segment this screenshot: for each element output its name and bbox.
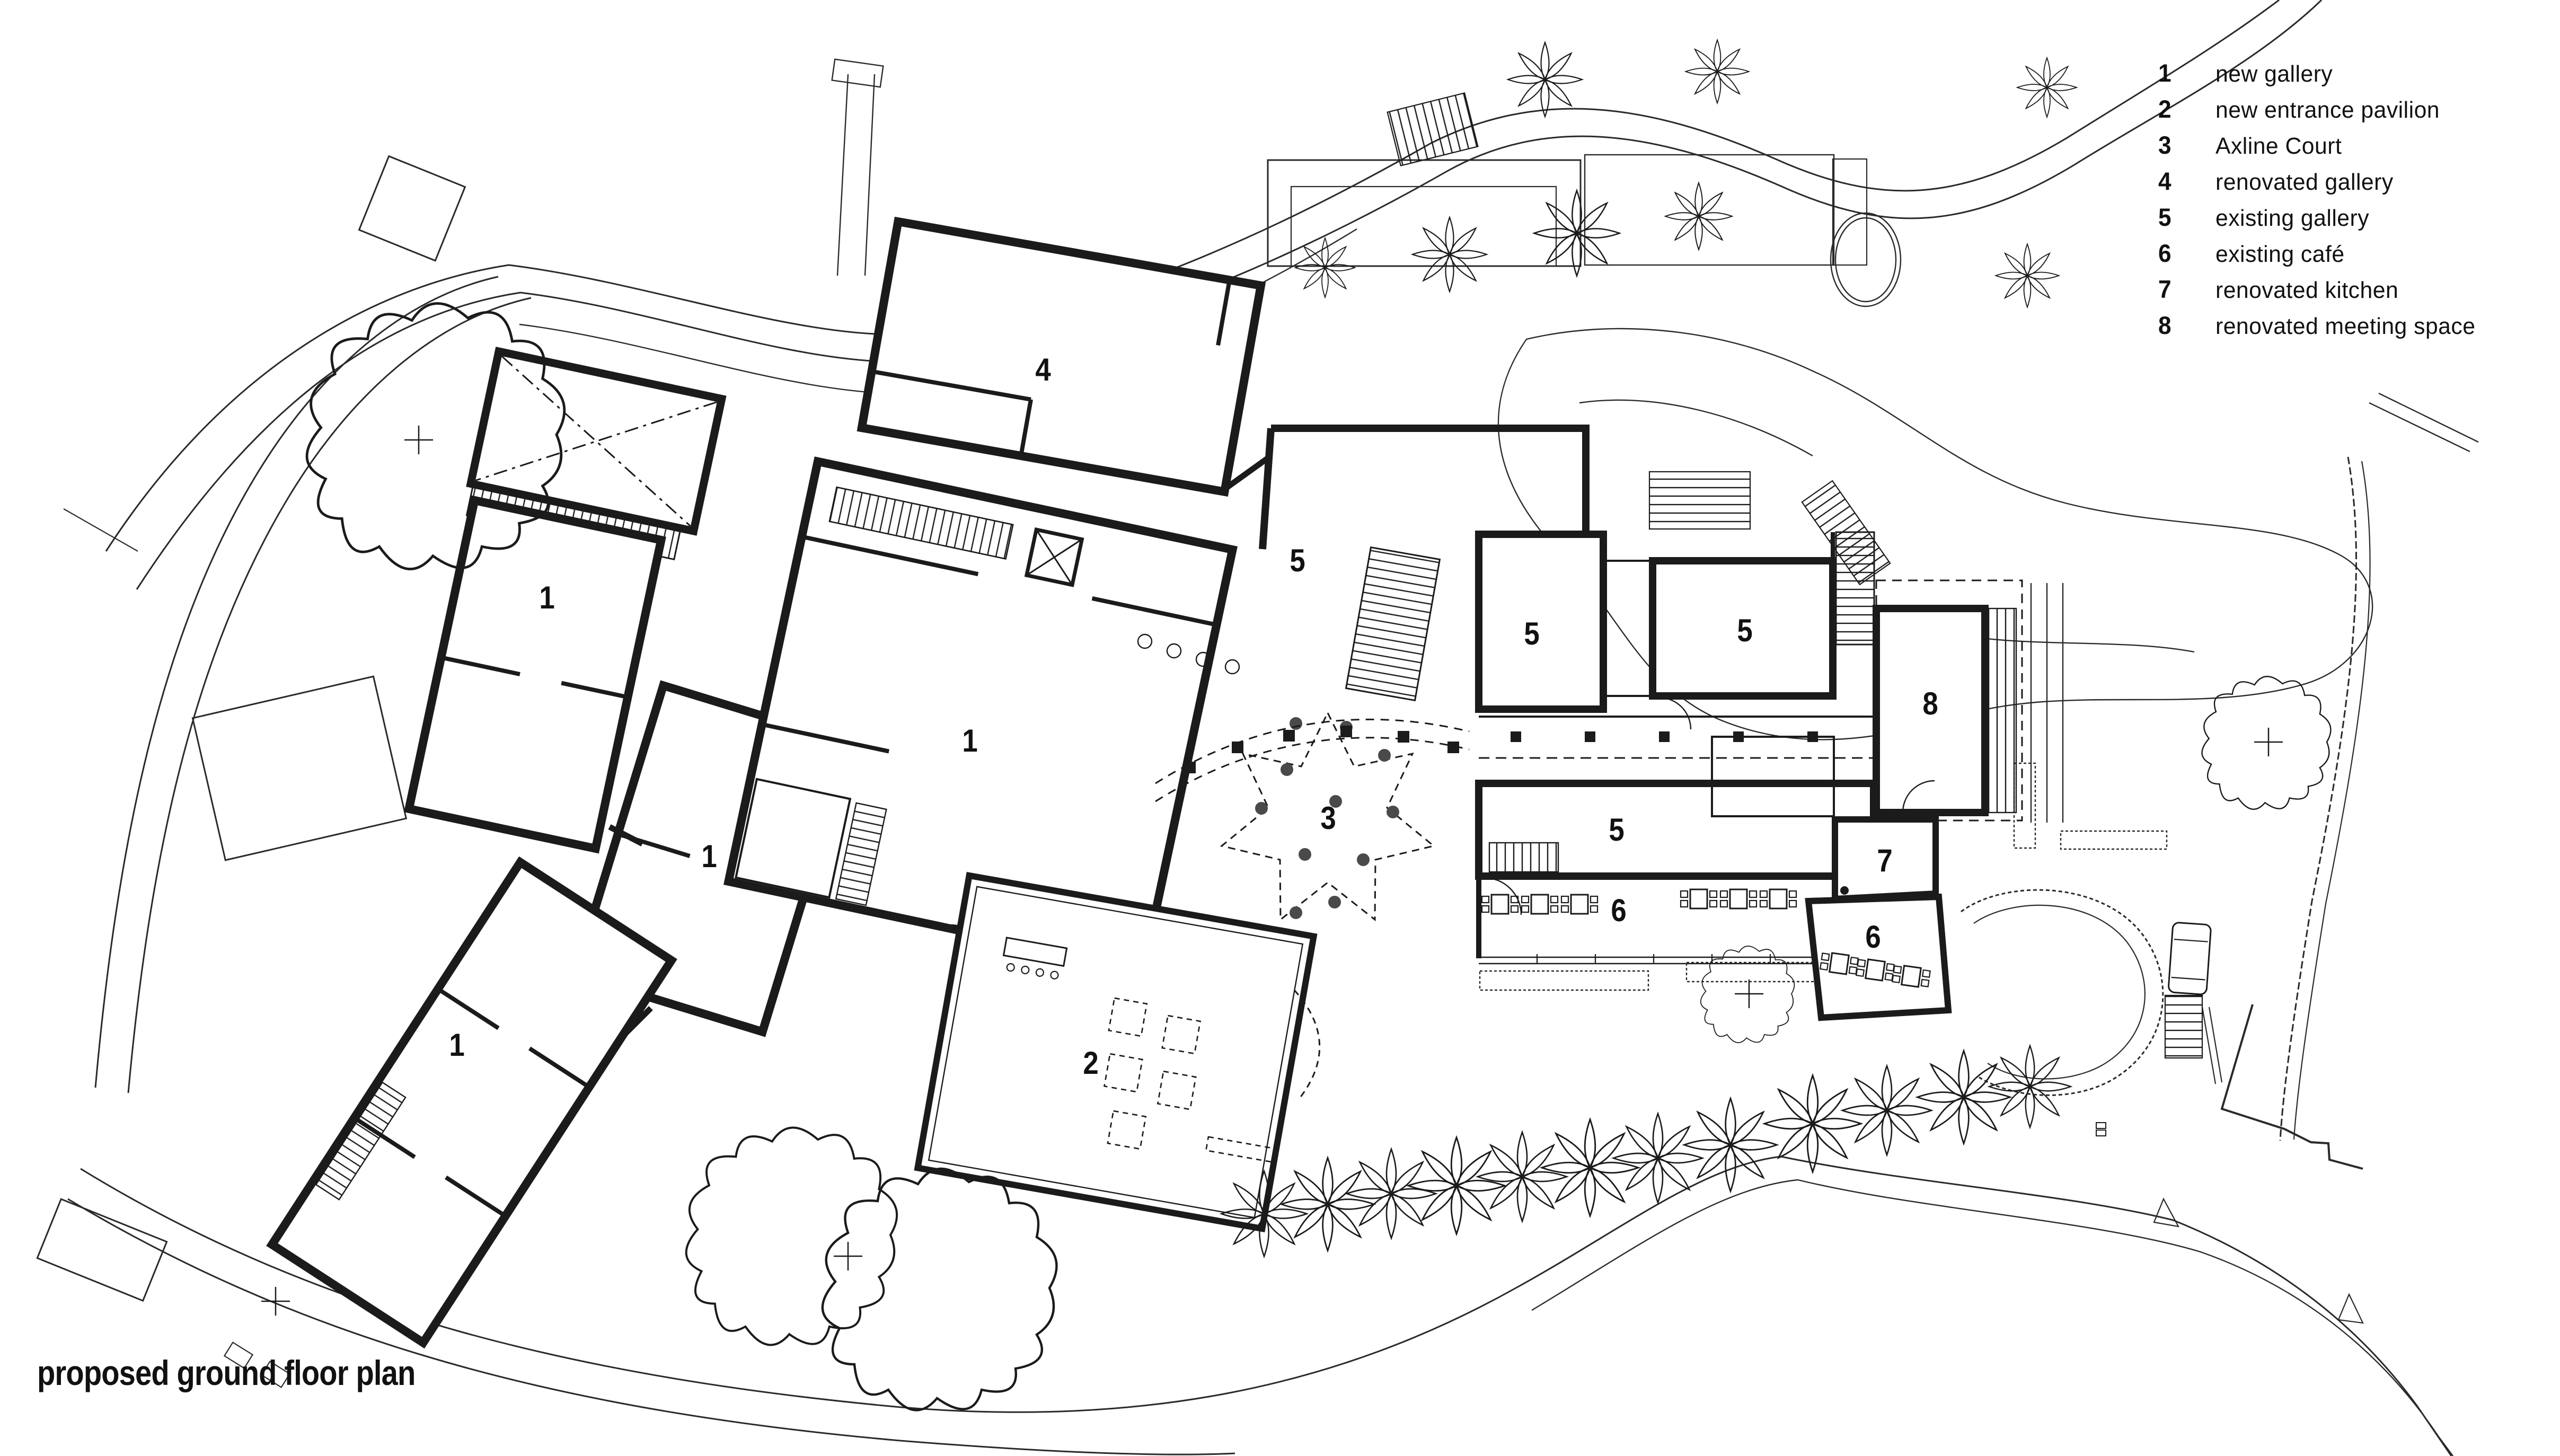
- legend-item-5: 5existing gallery: [2158, 202, 2484, 239]
- legend-label: renovated kitchen: [2215, 277, 2398, 304]
- legend-number: 5: [2158, 202, 2212, 232]
- renovated-gallery-4: [862, 222, 1261, 492]
- drive-hedge-arc: [1961, 890, 2163, 1095]
- legend-label: new entrance pavilion: [2215, 97, 2440, 123]
- legend-item-2: 2new entrance pavilion: [2158, 94, 2484, 130]
- legend-item-8: 8renovated meeting space: [2158, 311, 2484, 347]
- legend-item-3: 3Axline Court: [2158, 130, 2484, 166]
- stair-core-east: [1833, 532, 1874, 645]
- legend-item-7: 7renovated kitchen: [2158, 275, 2484, 311]
- palm-trees-top: [1295, 40, 2077, 307]
- legend-number: 6: [2158, 239, 2212, 268]
- axline-court: [1155, 713, 1469, 920]
- legend-item-1: 1new gallery: [2158, 58, 2484, 94]
- legend: 1new gallery2new entrance pavilion3Axlin…: [2158, 58, 2484, 347]
- new-gallery-wing-a: [409, 500, 661, 849]
- legend-number: 3: [2158, 130, 2212, 160]
- legend-label: new gallery: [2215, 61, 2333, 87]
- legend-label: renovated meeting space: [2215, 313, 2475, 340]
- court-trees: [1255, 717, 1399, 919]
- existing-gallery-5c: [1603, 561, 1833, 696]
- palm-trees-bottom: [1222, 1046, 2071, 1257]
- legend-label: Axline Court: [2215, 133, 2342, 160]
- legend-item-4: 4renovated gallery: [2158, 166, 2484, 202]
- meeting-space-8: [1876, 580, 2022, 820]
- new-gallery-wing-c: [272, 862, 672, 1343]
- cafe-room-6b: [1808, 897, 1948, 1018]
- cafe-hedges: [1480, 963, 1869, 990]
- legend-number: 7: [2158, 275, 2212, 304]
- legend-label: renovated gallery: [2215, 169, 2394, 196]
- entrance-pavilion: [917, 876, 1313, 1229]
- legend-number: 4: [2158, 166, 2212, 196]
- storm-drain: [2096, 1123, 2106, 1136]
- legend-item-6: 6existing café: [2158, 239, 2484, 275]
- car: [2168, 922, 2211, 995]
- grand-stair: [1346, 548, 1440, 701]
- legend-number: 2: [2158, 94, 2212, 123]
- legend-number: 8: [2158, 311, 2212, 340]
- existing-gallery-5b: [1479, 534, 1603, 709]
- legend-label: existing gallery: [2215, 205, 2369, 232]
- page-title: proposed ground floor plan: [37, 1353, 415, 1393]
- legend-label: existing café: [2215, 241, 2345, 268]
- legend-number: 1: [2158, 58, 2212, 87]
